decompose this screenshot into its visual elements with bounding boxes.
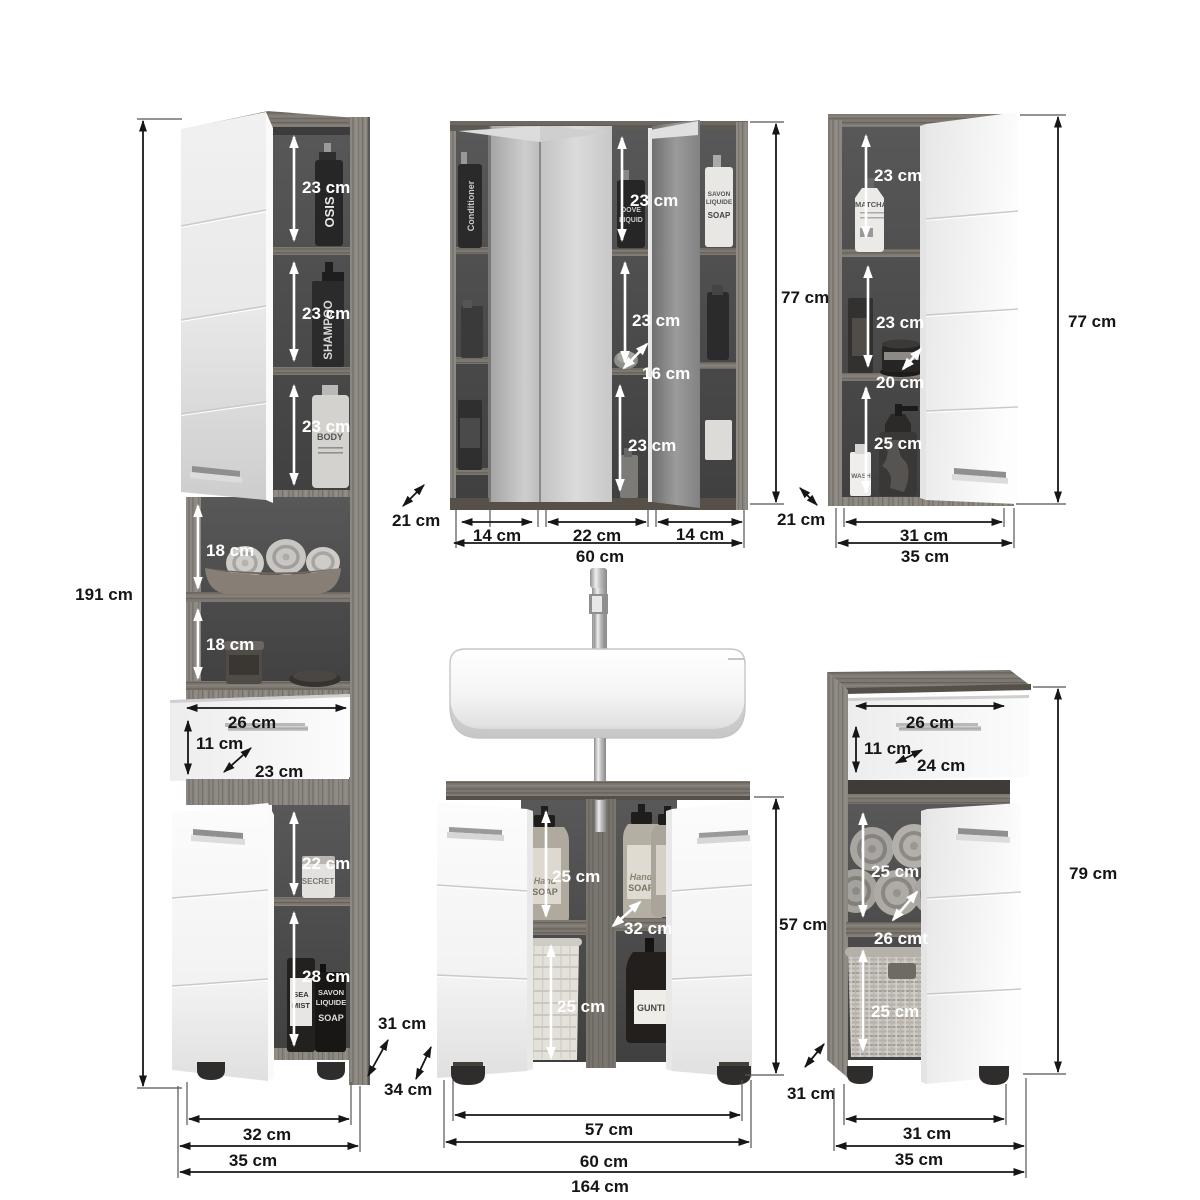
svg-text:23 cm: 23 cm [628, 436, 676, 455]
svg-text:77 cm: 77 cm [1068, 312, 1116, 331]
svg-text:25 cm: 25 cm [552, 867, 600, 886]
svg-text:34 cm: 34 cm [384, 1080, 432, 1099]
svg-text:21 cm: 21 cm [392, 511, 440, 530]
svg-text:SAVON: SAVON [708, 191, 731, 198]
svg-text:18 cm: 18 cm [206, 635, 254, 654]
svg-text:SEA: SEA [293, 990, 309, 999]
svg-text:20 cm: 20 cm [876, 373, 924, 392]
svg-text:60 cm: 60 cm [576, 547, 624, 566]
svg-text:26 cm: 26 cm [906, 713, 954, 732]
svg-text:60 cm: 60 cm [580, 1152, 628, 1171]
svg-text:25 cm: 25 cm [871, 1002, 919, 1021]
svg-text:23 cm: 23 cm [630, 191, 678, 210]
svg-text:28 cm: 28 cm [302, 967, 350, 986]
svg-text:OSIS: OSIS [322, 196, 337, 227]
svg-text:22 cm: 22 cm [302, 854, 350, 873]
svg-text:11 cm: 11 cm [864, 739, 911, 758]
svg-text:23 cm: 23 cm [874, 166, 922, 185]
svg-text:16 cm: 16 cm [642, 364, 690, 383]
svg-text:SAVON: SAVON [318, 988, 344, 997]
svg-text:11 cm: 11 cm [196, 734, 243, 753]
svg-text:23 cm: 23 cm [302, 417, 350, 436]
svg-text:Hand: Hand [630, 872, 653, 882]
svg-text:31 cm: 31 cm [903, 1124, 951, 1143]
svg-text:77 cm: 77 cm [781, 288, 829, 307]
svg-text:164 cm: 164 cm [571, 1177, 629, 1196]
svg-text:79 cm: 79 cm [1069, 864, 1117, 883]
svg-text:26 cm: 26 cm [228, 713, 276, 732]
svg-text:GUNTI: GUNTI [637, 1003, 665, 1013]
svg-text:31 cm: 31 cm [378, 1014, 426, 1033]
svg-text:LIQUIDE: LIQUIDE [316, 998, 346, 1007]
svg-text:57 cm: 57 cm [585, 1120, 633, 1139]
svg-text:35 cm: 35 cm [895, 1150, 943, 1169]
svg-text:32 cm: 32 cm [624, 919, 672, 938]
svg-text:26 cmt: 26 cmt [874, 929, 928, 948]
svg-text:WASH: WASH [851, 473, 871, 480]
svg-text:25 cm: 25 cm [871, 862, 919, 881]
svg-text:57 cm: 57 cm [779, 915, 827, 934]
svg-text:23 cm: 23 cm [255, 762, 303, 781]
svg-text:23 cm: 23 cm [302, 178, 350, 197]
svg-text:24 cm: 24 cm [917, 756, 965, 775]
svg-text:14 cm: 14 cm [676, 525, 724, 544]
svg-text:23 cm: 23 cm [632, 311, 680, 330]
svg-text:SECRET: SECRET [302, 877, 335, 886]
svg-text:31 cm: 31 cm [787, 1084, 835, 1103]
svg-text:23 cm: 23 cm [302, 304, 350, 323]
svg-text:SOAP: SOAP [628, 883, 654, 893]
svg-text:LIQUIDE: LIQUIDE [706, 199, 733, 206]
svg-text:25 cm: 25 cm [557, 997, 605, 1016]
svg-text:32 cm: 32 cm [243, 1125, 291, 1144]
svg-text:SOAP: SOAP [318, 1013, 344, 1023]
svg-text:SOAP: SOAP [708, 211, 731, 220]
svg-text:Conditioner: Conditioner [466, 180, 476, 231]
svg-text:21 cm: 21 cm [777, 510, 825, 529]
svg-text:MATCHA: MATCHA [855, 200, 888, 209]
svg-text:23 cm: 23 cm [876, 313, 924, 332]
svg-text:18 cm: 18 cm [206, 541, 254, 560]
svg-text:191 cm: 191 cm [75, 585, 133, 604]
svg-text:35 cm: 35 cm [229, 1151, 277, 1170]
svg-text:25 cm: 25 cm [874, 434, 922, 453]
svg-text:35 cm: 35 cm [901, 547, 949, 566]
